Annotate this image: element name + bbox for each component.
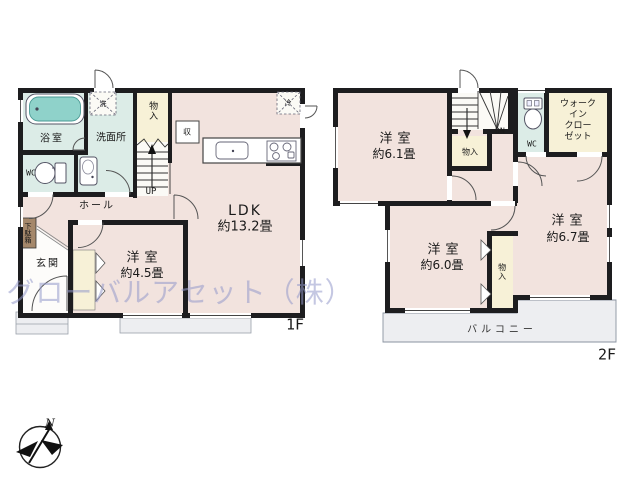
hall-label: ホール xyxy=(79,200,115,212)
wc-label-2f: WC xyxy=(527,139,537,148)
compass-north-label: N xyxy=(45,417,55,430)
washroom-label: 洗面所 xyxy=(96,132,126,144)
wc-label-1f: WC xyxy=(26,168,36,177)
watermark: グローバルアセット（株） xyxy=(6,271,353,311)
room60-size: 約6.0畳 xyxy=(420,259,463,273)
room67-name: 洋室 xyxy=(546,215,587,230)
kitchen-counter-icon xyxy=(203,138,301,163)
bath-label: 浴室 xyxy=(40,133,64,145)
toilet-icon xyxy=(35,163,66,184)
room67-size: 約6.7畳 xyxy=(546,231,589,245)
walk-in-closet-label: ウォーク イン クロー ゼット xyxy=(560,99,596,143)
compass-north-icon xyxy=(16,421,63,468)
stove-icon xyxy=(267,141,296,161)
floorplan-page: 浴室 洗面所 WC 物入 UP ホール 下駄箱 玄関 洋室 約4.5畳 LDK … xyxy=(0,0,640,480)
room60-name: 洋室 xyxy=(422,244,463,259)
closet-label-2f: 物入 xyxy=(497,263,506,281)
terrace xyxy=(120,318,251,333)
dn-label: DN xyxy=(495,126,505,135)
room45-name: 洋室 xyxy=(121,252,162,267)
floorplan-canvas xyxy=(0,0,640,480)
fridge-label: 冷 xyxy=(285,99,292,107)
stairwell-2f xyxy=(452,90,508,130)
vanity-sink-icon xyxy=(80,157,97,185)
entrance-label: 玄関 xyxy=(36,258,60,270)
ldk-size: 約13.2畳 xyxy=(218,221,273,236)
up-label: UP xyxy=(146,187,157,197)
ldk-name: LDK xyxy=(228,203,262,219)
floor1-label: 1F xyxy=(286,316,304,333)
stair-storage-label-2f: 物入 xyxy=(462,147,478,156)
storage-label-1f: 収 xyxy=(183,127,191,136)
shoe-cabinet-label: 下駄箱 xyxy=(24,223,32,244)
stair-storage-label-1f: 物入 xyxy=(147,101,157,121)
balcony-label: バルコニー xyxy=(467,324,537,336)
bathtub-icon xyxy=(26,94,84,124)
toilet-icon xyxy=(524,98,542,129)
room61-name: 洋室 xyxy=(374,133,415,148)
room61-size: 約6.1畳 xyxy=(372,148,415,162)
washer-label: 洗 xyxy=(100,100,107,108)
floor2-label: 2F xyxy=(598,346,616,363)
